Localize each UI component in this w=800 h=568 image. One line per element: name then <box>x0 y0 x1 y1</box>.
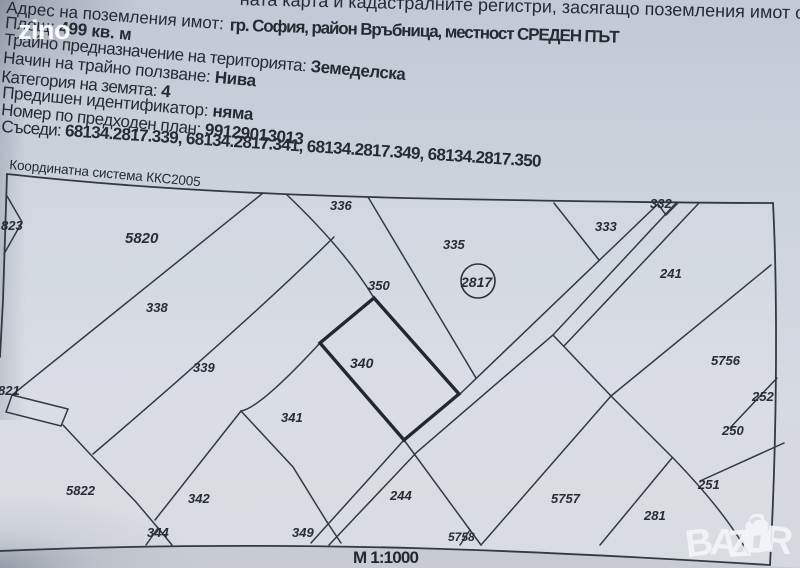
svg-text:5757: 5757 <box>551 491 581 506</box>
svg-text:341: 341 <box>281 410 303 425</box>
svg-text:342: 342 <box>188 491 210 506</box>
svg-text:339: 339 <box>193 360 215 375</box>
svg-text:5756: 5756 <box>711 353 741 368</box>
svg-text:244: 244 <box>389 488 412 503</box>
svg-text:349: 349 <box>292 525 314 540</box>
svg-text:250: 250 <box>721 423 744 438</box>
svg-text:5820: 5820 <box>125 230 159 247</box>
svg-text:М 1:1000: М 1:1000 <box>353 548 419 567</box>
svg-text:R: R <box>763 518 795 563</box>
svg-text:336: 336 <box>330 198 352 213</box>
svg-text:344: 344 <box>147 525 169 540</box>
svg-text:350: 350 <box>368 278 390 293</box>
svg-text:251: 251 <box>697 477 720 492</box>
svg-text:338: 338 <box>146 300 168 315</box>
svg-text:335: 335 <box>443 237 465 252</box>
svg-text:821: 821 <box>0 383 20 398</box>
svg-text:5758: 5758 <box>448 530 475 544</box>
svg-text:281: 281 <box>643 508 666 523</box>
svg-text:332: 332 <box>650 196 672 211</box>
svg-text:241: 241 <box>659 266 682 281</box>
svg-text:zino: zino <box>18 15 70 45</box>
svg-text:2817: 2817 <box>460 274 493 290</box>
svg-text:340: 340 <box>350 355 374 371</box>
svg-text:5822: 5822 <box>66 483 96 498</box>
svg-text:823: 823 <box>1 218 23 233</box>
svg-text:333: 333 <box>595 219 617 234</box>
svg-text:252: 252 <box>751 389 774 404</box>
